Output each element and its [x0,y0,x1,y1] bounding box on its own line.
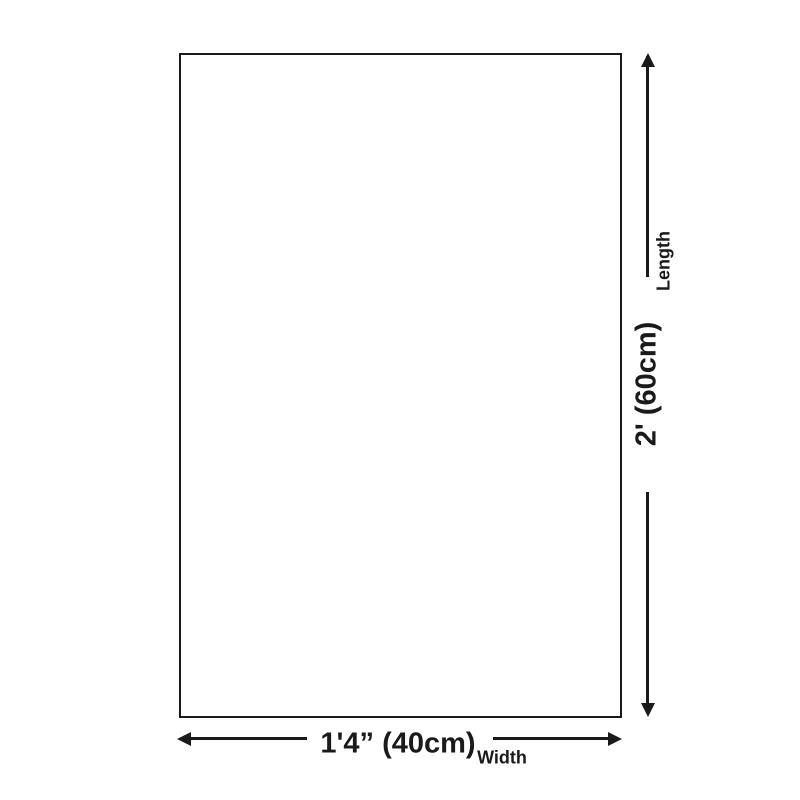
dimension-diagram: Length 2' (60cm) 1'4” (40cm) Width [0,0,800,800]
arrow-right-icon [608,732,622,746]
product-outline-rectangle [179,53,622,718]
width-dimension-value: 1'4” (40cm) [320,728,475,761]
width-arrow-left-shaft [182,737,307,740]
width-arrow-right-shaft [493,737,617,740]
length-arrow-top-shaft [646,56,649,277]
width-axis-label: Width [477,748,527,769]
length-arrow-bottom-shaft [646,492,649,712]
length-axis-label: Length [654,231,675,291]
arrow-down-icon [641,703,655,717]
length-dimension-value: 2' (60cm) [631,322,664,447]
